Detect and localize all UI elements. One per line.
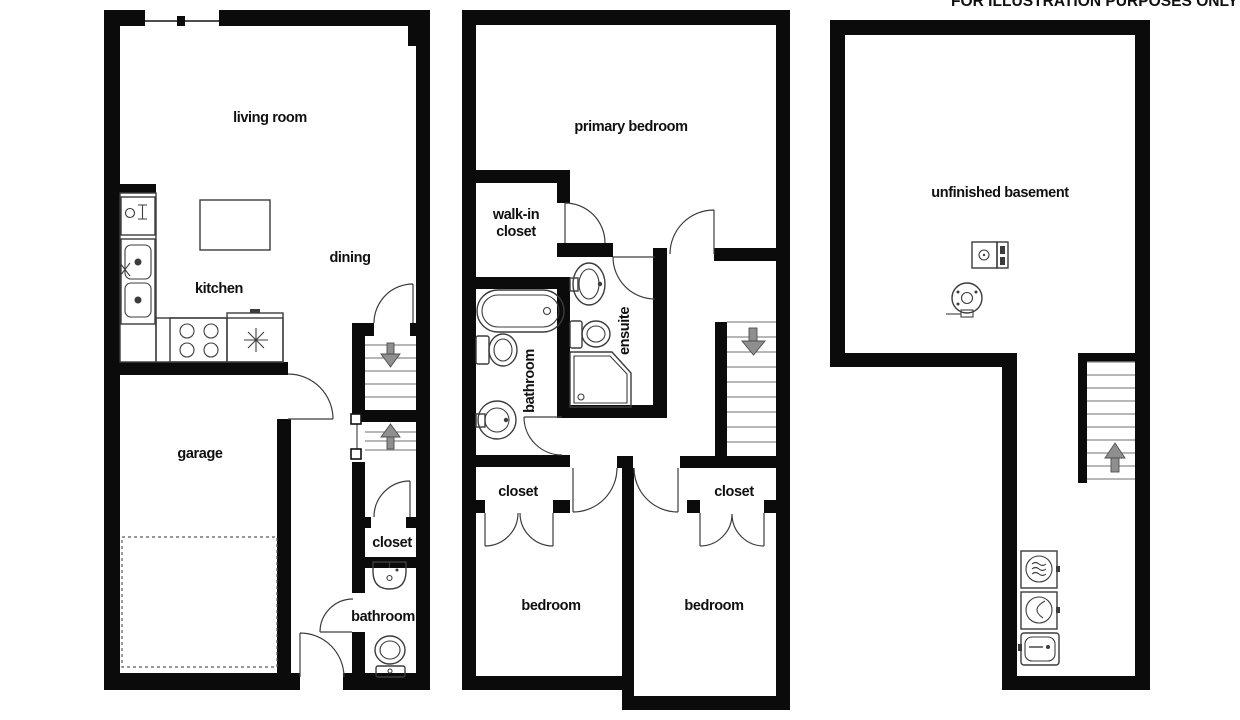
stove-icon xyxy=(170,318,227,362)
window-icon xyxy=(145,16,219,26)
bedroom-right-door xyxy=(634,468,678,512)
kitchen-garage-door xyxy=(288,374,333,419)
upper-floor-plan: primary bedroom walk-in closet bathroom … xyxy=(462,10,790,710)
upper-stairs-down-icon xyxy=(727,322,776,442)
label-unfinished-basement: unfinished basement xyxy=(931,185,1069,201)
label-upper-bathroom: bathroom xyxy=(522,349,538,413)
closet-right-double-doors xyxy=(700,513,764,546)
label-walk-in-line1: walk-in xyxy=(492,207,539,223)
fridge-icon xyxy=(227,309,283,362)
label-closet-left: closet xyxy=(498,484,538,500)
car-pad xyxy=(122,537,277,667)
ensuite-toilet-icon xyxy=(570,321,610,348)
dishwasher-icon xyxy=(121,197,155,235)
label-walk-in-line2: closet xyxy=(496,224,536,240)
laundry-tub-icon xyxy=(1018,633,1059,665)
label-primary-bedroom: primary bedroom xyxy=(574,119,687,135)
basement-floor-plan: unfinished basement xyxy=(830,20,1150,690)
bathtub-icon xyxy=(477,290,564,332)
stairs-down-icon xyxy=(365,343,416,397)
upper-toilet-icon xyxy=(476,334,517,366)
corner-shower-icon xyxy=(570,352,631,407)
label-bedroom-left: bedroom xyxy=(521,598,580,614)
furnace-icon xyxy=(972,242,1008,268)
dryer-icon xyxy=(1021,592,1060,629)
dining-hall-door xyxy=(374,284,413,323)
main-floor-plan: living room dining kitchen garage closet… xyxy=(104,10,430,690)
ensuite-door xyxy=(613,257,655,299)
washer-icon xyxy=(1021,551,1060,588)
rear-entry-door xyxy=(300,633,344,677)
label-kitchen: kitchen xyxy=(195,281,243,297)
floorplan-svg: FOR ILLUSTRATION PURPOSES ONLY xyxy=(0,0,1240,720)
basement-stairs-up-icon xyxy=(1087,362,1135,479)
label-closet-right: closet xyxy=(714,484,754,500)
closet-left-double-doors xyxy=(485,513,553,546)
label-main-closet: closet xyxy=(372,535,412,551)
pedestal-sink-icon xyxy=(476,401,516,439)
label-ensuite: ensuite xyxy=(617,307,633,355)
label-dining: dining xyxy=(329,250,370,266)
floorplan-page: FOR ILLUSTRATION PURPOSES ONLY xyxy=(0,0,1240,720)
label-living-room: living room xyxy=(233,110,307,126)
main-bathroom-door xyxy=(320,599,353,632)
disclaimer-text: FOR ILLUSTRATION PURPOSES ONLY xyxy=(951,0,1239,10)
basement-walls xyxy=(830,20,1150,690)
bedroom-left-door xyxy=(573,468,617,512)
toilet-icon xyxy=(375,636,405,677)
main-closet-door xyxy=(374,481,410,517)
kitchen-counter xyxy=(120,193,283,362)
walk-in-closet-door xyxy=(565,203,605,243)
double-sink-icon xyxy=(120,239,155,324)
label-bedroom-right: bedroom xyxy=(684,598,743,614)
label-garage: garage xyxy=(177,446,222,462)
ensuite-sink-icon xyxy=(570,263,605,305)
label-main-bathroom: bathroom xyxy=(351,609,415,625)
upper-bathroom-door xyxy=(524,417,562,455)
primary-bedroom-door xyxy=(670,210,714,254)
kitchen-island xyxy=(200,200,270,250)
water-heater-icon xyxy=(946,283,982,317)
